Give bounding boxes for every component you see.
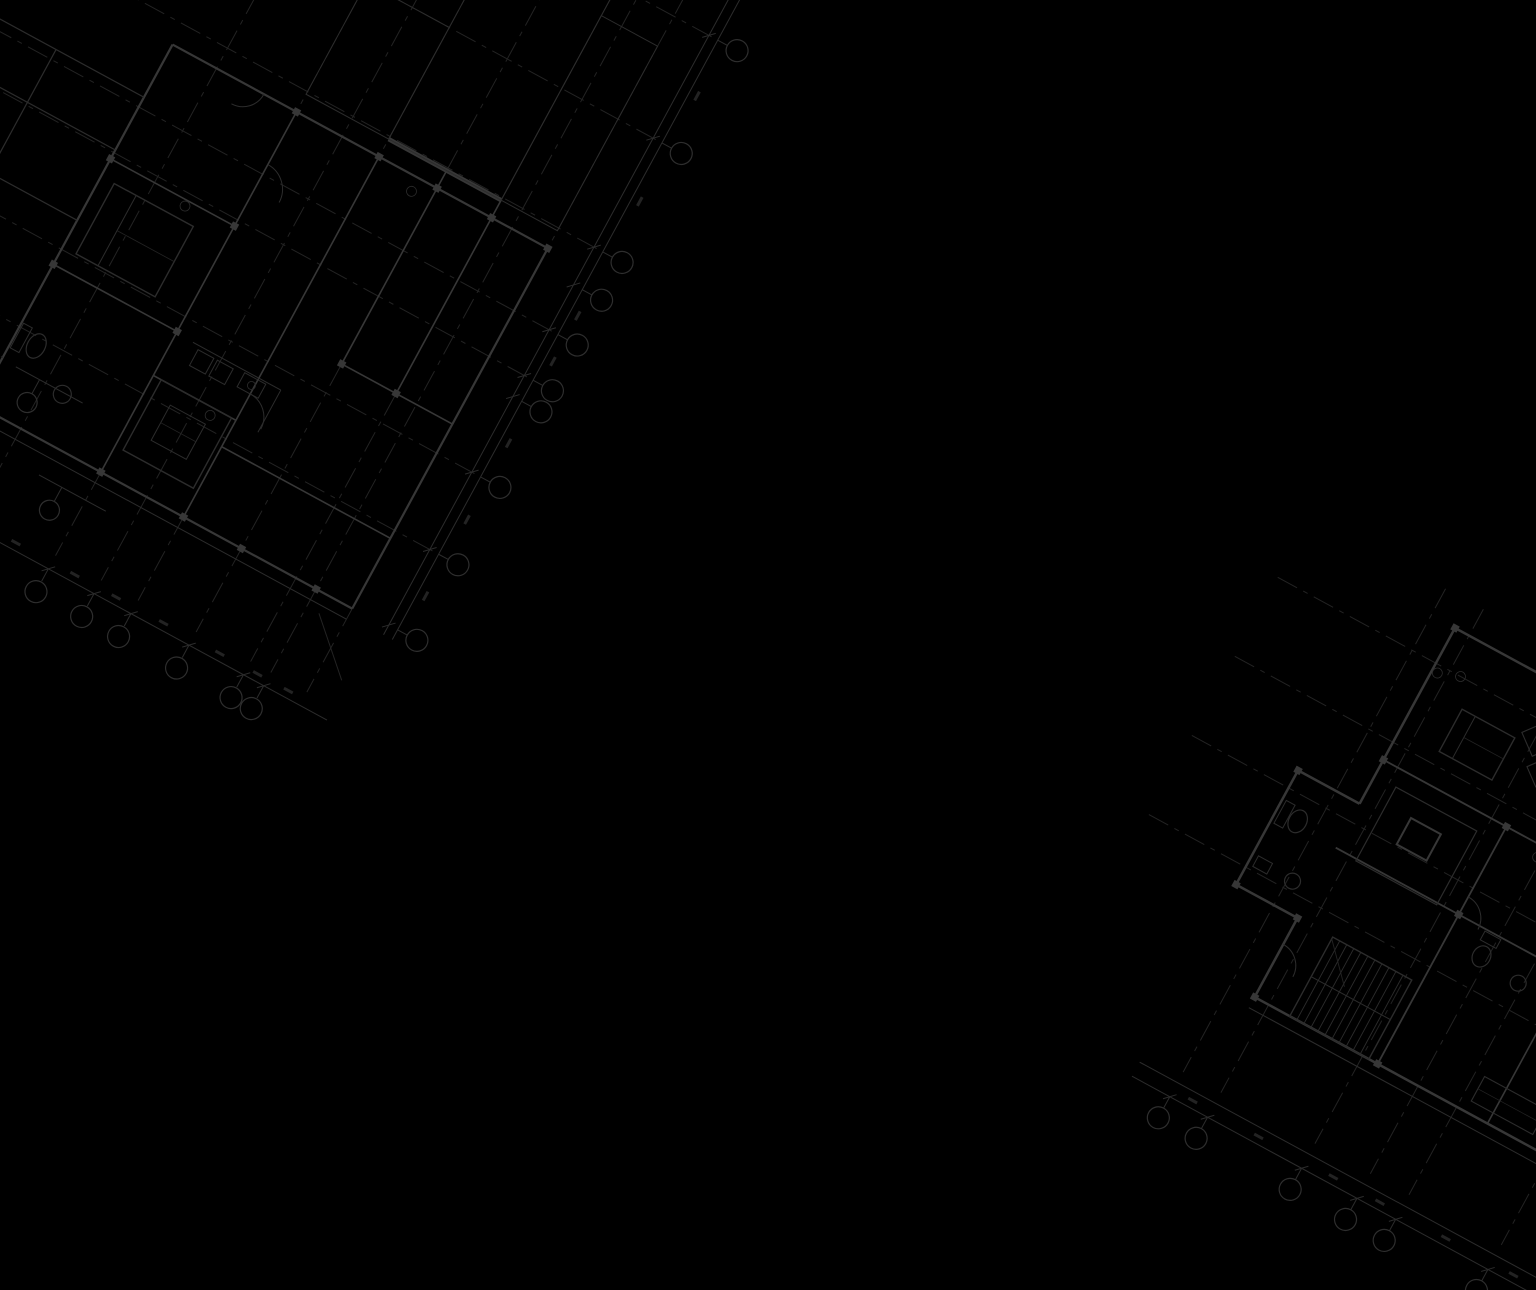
dimension-text-mark: [505, 438, 512, 448]
bubble-leader: [603, 252, 613, 257]
furniture: [1527, 760, 1536, 787]
appliance: [209, 360, 233, 384]
wall-line: [0, 64, 115, 150]
door-arc: [231, 83, 264, 116]
wall-line: [1383, 760, 1536, 922]
grid-bubble: [1369, 1226, 1399, 1256]
bubble-leader: [533, 380, 543, 385]
bubble-leader: [718, 40, 728, 45]
dimension-text-mark: [574, 311, 581, 321]
grid-line-column: [0, 0, 374, 512]
floorplan-cluster-lower-right: [1019, 503, 1536, 1290]
dimension-text-mark: [158, 619, 168, 626]
stair-rail: [1311, 977, 1390, 1020]
grid-bubble: [587, 285, 617, 315]
bed-pillow-line: [98, 195, 136, 265]
dimension-text-mark: [1441, 1234, 1451, 1241]
grid-line-column: [271, 0, 669, 673]
column-marker: [337, 359, 346, 368]
grid-line-row: [0, 0, 553, 332]
grid-line-column: [196, 0, 594, 632]
shaft: [1397, 818, 1441, 861]
dimension-text-mark: [422, 591, 429, 601]
toilet-bowl: [22, 330, 50, 361]
column-marker: [237, 544, 246, 553]
grid-line-row: [0, 0, 598, 250]
bubble-leader: [439, 554, 449, 559]
grid-line-row: [1192, 735, 1536, 981]
wall-line: [222, 447, 391, 539]
dimension-line: [1140, 1062, 1536, 1282]
grid-line-row: [0, 0, 658, 141]
grid-bubble: [485, 472, 515, 502]
grid-bubble: [21, 577, 51, 607]
door-arc: [1272, 944, 1305, 977]
sink: [50, 382, 74, 406]
dimension-tick: [587, 240, 601, 254]
dimension-text-mark: [693, 91, 700, 101]
wall-line: [1255, 997, 1536, 1159]
grid-bubble: [562, 330, 592, 360]
blueprint-background: [0, 0, 1536, 1290]
grid-line-column: [101, 0, 499, 580]
dimension-tick: [465, 465, 479, 479]
grid-bubble: [443, 550, 473, 580]
grid-bubble: [236, 694, 266, 724]
column-marker: [374, 152, 383, 161]
grid-line-column: [56, 0, 454, 556]
wall-line: [0, 11, 144, 97]
bubble-leader: [32, 380, 40, 394]
grid-line-row: [0, 111, 476, 475]
wall-line: [101, 112, 297, 472]
wall-line: [0, 134, 77, 220]
fixture-circle: [203, 409, 217, 423]
wall-line: [1487, 974, 1536, 1123]
kitchen-counter: [258, 390, 281, 432]
toilet-bowl: [1284, 807, 1311, 837]
bubble-leader: [54, 487, 62, 501]
room-outline: [1356, 787, 1477, 905]
room-outline: [306, 0, 449, 139]
grid-bubble: [14, 389, 41, 416]
wall-line: [1236, 885, 1298, 918]
shaft-room: [123, 380, 231, 488]
grid-line-column: [1221, 609, 1483, 1092]
floorplan-cluster-upper-left: [0, 0, 778, 777]
wall-line: [1360, 628, 1455, 804]
grid-bubble: [402, 625, 432, 655]
stair-break-line: [1315, 939, 1362, 987]
dimension-text-mark: [636, 196, 643, 206]
sink: [1507, 972, 1529, 994]
dimension-text-mark: [1188, 1097, 1198, 1104]
column-marker: [230, 221, 239, 230]
grid-line-row: [44, 0, 714, 38]
column-marker: [1502, 822, 1511, 831]
grid-line-column: [307, 0, 705, 692]
wall-line: [183, 157, 379, 517]
dimension-text-mark: [252, 670, 262, 677]
grid-bubble: [1462, 1276, 1492, 1290]
wall-line: [0, 50, 56, 173]
column-marker: [487, 213, 496, 222]
kitchen-sink-drain: [246, 380, 257, 391]
dimension-tick: [257, 679, 271, 693]
wall-line: [1298, 770, 1360, 803]
wall-line: [1336, 848, 1536, 1010]
dimension-tick: [423, 543, 437, 557]
dimension-text-mark: [283, 687, 293, 694]
toilet-bowl: [1468, 942, 1494, 970]
bubble-leader: [481, 477, 491, 482]
dimension-text-mark: [215, 650, 225, 657]
grid-bubble: [216, 683, 246, 713]
blueprint-canvas: [0, 0, 1536, 1290]
bubble-leader: [582, 290, 592, 295]
wall-line: [1249, 1008, 1536, 1170]
door-arc: [254, 165, 292, 203]
room-outline: [501, 16, 657, 231]
column-marker: [172, 327, 181, 336]
column-marker: [292, 107, 301, 116]
wall-line: [352, 248, 548, 608]
bed-blanket-line: [1464, 737, 1504, 758]
grid-bubble: [1181, 1123, 1211, 1153]
column-marker: [1293, 766, 1302, 775]
wall-line: [342, 171, 447, 364]
column-marker: [1379, 755, 1388, 764]
column-marker: [311, 584, 320, 593]
dimension-line: [392, 0, 742, 639]
stray-line: [296, 613, 365, 680]
grid-bubble: [722, 36, 752, 66]
column-marker: [391, 389, 400, 398]
fixture-circle: [1531, 850, 1536, 864]
grid-line-row: [1278, 577, 1536, 823]
kitchen-counter: [193, 342, 281, 390]
bed-blanket-line: [117, 231, 174, 262]
wall-line: [1255, 918, 1298, 997]
appliance: [189, 350, 213, 374]
dimension-tick: [506, 390, 520, 404]
dimension-line: [16, 367, 83, 403]
column-marker: [179, 512, 188, 521]
grid-bubble: [1331, 1205, 1361, 1235]
column-marker: [96, 467, 105, 476]
dimension-text-mark: [111, 593, 121, 600]
dimension-text-mark: [1375, 1199, 1385, 1206]
grid-line-column: [251, 0, 649, 662]
grid-line-column: [1370, 690, 1536, 1173]
dimension-text-mark: [11, 539, 21, 546]
dimension-tick: [382, 618, 396, 632]
dimension-text-mark: [1328, 1173, 1338, 1180]
grid-bubble: [1275, 1174, 1305, 1204]
grid-bubble: [607, 248, 637, 278]
bath-cabinet: [1253, 856, 1273, 874]
column-marker: [1250, 992, 1259, 1001]
column-marker: [1450, 623, 1459, 632]
wall-line: [0, 405, 352, 609]
grid-bubble: [67, 602, 97, 632]
column-marker: [106, 154, 115, 163]
door-arc: [238, 394, 273, 429]
dimension-text-mark: [70, 571, 80, 578]
dimension-tick: [518, 369, 532, 383]
grid-line-column: [1315, 660, 1536, 1143]
counter-edge: [1478, 1089, 1536, 1122]
column-marker: [1373, 1059, 1382, 1068]
dimension-tick: [567, 278, 581, 292]
grid-bubble: [1143, 1103, 1173, 1133]
stray-line: [0, 319, 3, 357]
counter: [1471, 1076, 1536, 1134]
column-marker: [432, 183, 441, 192]
grid-bubble: [162, 653, 192, 683]
dimension-tick: [542, 323, 556, 337]
dimension-text-mark: [463, 515, 470, 525]
dimension-tick: [702, 29, 716, 43]
dimension-tick: [646, 131, 660, 145]
column-marker: [543, 244, 552, 253]
wall-line: [1378, 827, 1507, 1064]
grid-bubble: [36, 497, 63, 524]
column-marker: [1231, 880, 1240, 889]
bubble-leader: [522, 401, 532, 406]
column-marker: [1454, 910, 1463, 919]
dimension-line: [39, 475, 106, 511]
dimension-text-mark: [1254, 1133, 1264, 1140]
bubble-leader: [558, 335, 568, 340]
fixture-circle: [405, 185, 419, 199]
bubble-leader: [398, 630, 408, 635]
column-marker: [49, 260, 58, 269]
dimension-text-mark: [1508, 1271, 1518, 1278]
column-marker: [1293, 913, 1302, 922]
grid-line-column: [1183, 589, 1445, 1072]
bubble-leader: [662, 143, 672, 148]
dimension-tick: [1350, 1192, 1364, 1206]
grid-bubble: [104, 622, 134, 652]
dimension-text-mark: [549, 356, 556, 366]
dimension-tick: [1295, 1162, 1309, 1176]
grid-bubble: [666, 139, 696, 169]
